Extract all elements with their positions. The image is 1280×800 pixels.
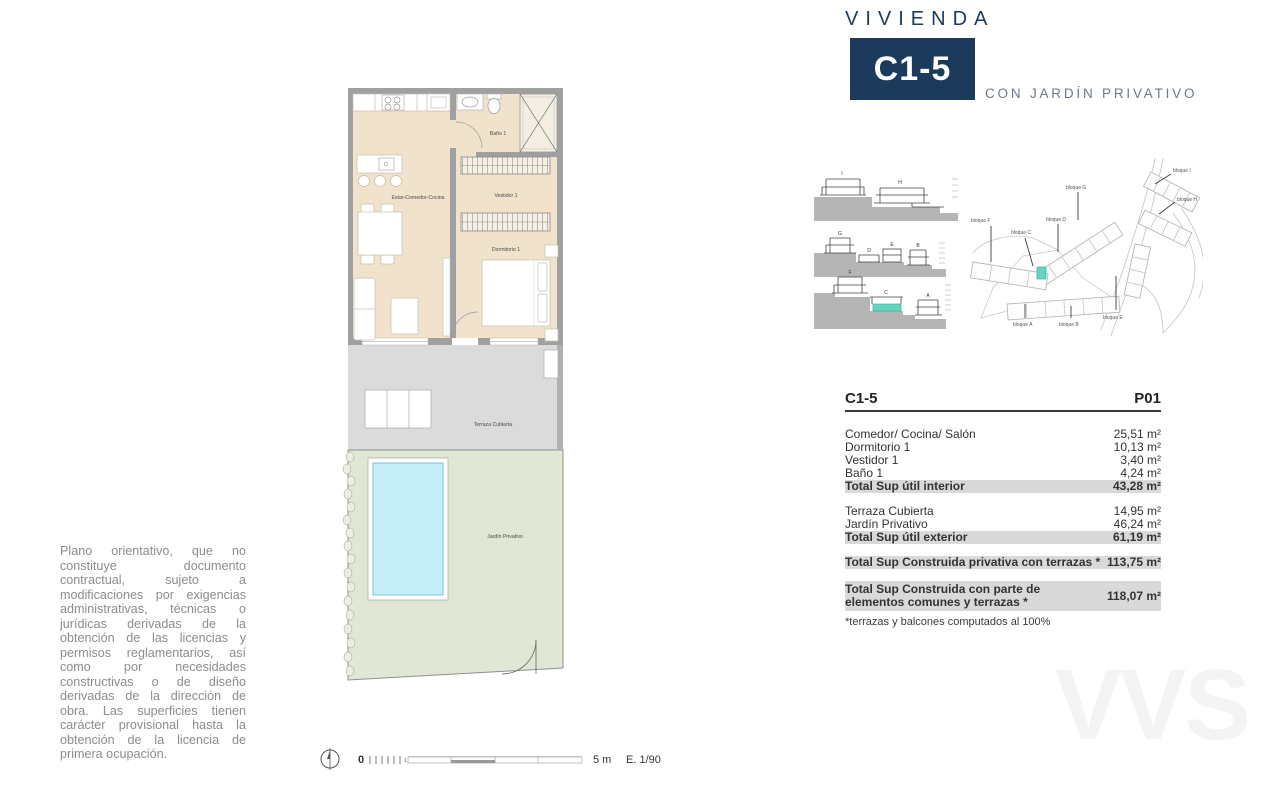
site-label-d: bloque D	[1046, 217, 1066, 223]
highlighted-unit-site	[1037, 267, 1046, 279]
pool	[368, 458, 448, 600]
section-block-a: A	[926, 293, 930, 299]
scale-ratio: E. 1/90	[626, 754, 661, 766]
table-unit-header: C1-5	[845, 390, 878, 407]
level-marks-2	[939, 243, 945, 263]
scale-zero: 0	[358, 754, 364, 766]
scale-bar-graphic	[408, 757, 582, 763]
highlighted-unit-section	[873, 304, 901, 311]
label-bano: Baño 1	[490, 131, 507, 137]
block-section-diagrams: I H G D E B	[812, 165, 960, 335]
row-label: Total Sup útil exterior	[845, 531, 973, 544]
site-label-f: bloque F	[971, 218, 990, 224]
section-block-c: C	[884, 290, 888, 296]
site-plan: bloque F bloque C bloque G bloque D bloq…	[963, 158, 1203, 348]
table-row: Vestidor 1 3,40 m²	[845, 454, 1161, 467]
row-label: Total Sup Construida con parte de elemen…	[845, 583, 1107, 609]
floor-plan-drawing: Estar-Comedor-Cocina Baño 1 Vestidor 1 D…	[330, 82, 570, 697]
table-row-total: Total Sup útil exterior 61,19 m²	[845, 531, 1161, 544]
scale-bar: 0 1 m 5 m E. 1/90	[316, 745, 676, 775]
legal-disclaimer: Plano orientativo, que no constituye doc…	[60, 544, 246, 762]
section-block-b: B	[916, 243, 920, 249]
label-vestidor: Vestidor 1	[494, 193, 517, 199]
label-estar: Estar-Comedor-Cocina	[391, 195, 444, 201]
unit-subtitle: CON JARDÍN PRIVATIVO	[985, 86, 1197, 101]
label-terraza: Terraza Cubierta	[474, 422, 512, 428]
table-row-total: Total Sup Construida privativa con terra…	[845, 556, 1161, 569]
level-marks-1	[952, 179, 958, 197]
site-buildings	[970, 172, 1199, 320]
row-value: 43,28 m²	[1113, 480, 1161, 493]
row-value: 61,19 m²	[1113, 531, 1161, 544]
unit-code-badge: C1-5	[850, 38, 975, 100]
section-block-h: H	[898, 180, 902, 186]
section-block-f: F	[848, 270, 851, 276]
vivienda-kicker: VIVIENDA	[845, 8, 977, 31]
unit-code: C1-5	[874, 50, 952, 89]
site-label-h: bloque H	[1177, 197, 1197, 203]
row-value: 113,75 m²	[1107, 556, 1161, 569]
table-floor-header: P01	[1134, 390, 1161, 407]
table-row-total: Total Sup útil interior 43,28 m²	[845, 480, 1161, 493]
table-row-total: Total Sup Construida con parte de elemen…	[845, 581, 1161, 611]
section-block-i: I	[841, 171, 842, 177]
surface-table: C1-5 P01 Comedor/ Cocina/ Salón 25,51 m²…	[845, 390, 1161, 628]
label-dormitorio: Dormitorio 1	[492, 247, 520, 253]
site-label-e: bloque E	[1103, 315, 1123, 321]
section-block-d: D	[867, 248, 871, 254]
site-label-b: bloque B	[1059, 322, 1079, 328]
row-label: Total Sup Construida privativa con terra…	[845, 556, 1106, 569]
level-marks-3	[945, 285, 951, 310]
table-footnote: *terrazas y balcones computados al 100%	[845, 616, 1161, 628]
site-label-g: bloque G	[1066, 185, 1086, 191]
scale-five-meters: 5 m	[593, 754, 611, 766]
site-label-c: bloque C	[1011, 230, 1031, 236]
section-ground-1	[814, 197, 958, 221]
label-jardin: Jardín Privativo	[487, 534, 523, 540]
plan-sheet: VIVIENDA C1-5 CON JARDÍN PRIVATIVO	[0, 0, 1280, 800]
scale-ticks	[370, 756, 400, 764]
table-header: C1-5 P01	[845, 390, 1161, 412]
row-label: Total Sup útil interior	[845, 480, 971, 493]
site-label-i: bloque I	[1173, 168, 1191, 174]
brand-watermark: VVS	[1055, 648, 1249, 763]
north-compass-icon	[321, 748, 339, 770]
row-value: 118,07 m²	[1107, 590, 1161, 603]
section-block-g: G	[838, 231, 842, 237]
site-label-a: bloque A	[1013, 322, 1033, 328]
section-block-e: E	[890, 242, 894, 248]
